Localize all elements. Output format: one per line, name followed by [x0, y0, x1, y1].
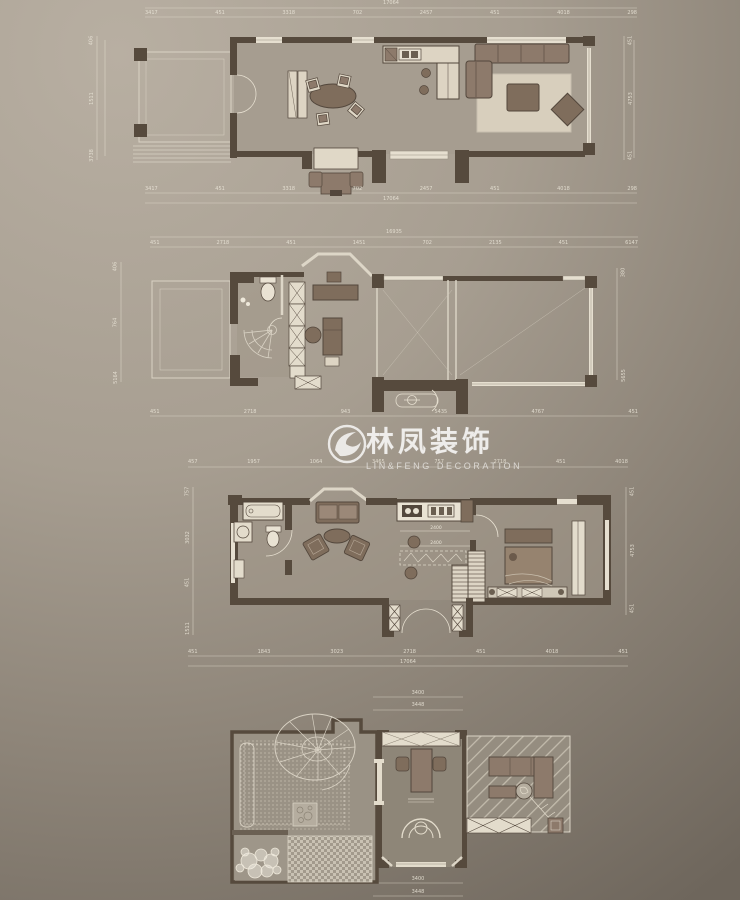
- dim-label: 298: [627, 11, 637, 16]
- desk: [411, 749, 432, 792]
- floor1-living: [466, 44, 584, 132]
- floor1-dims-top-total: 17064: [145, 1, 637, 6]
- dim-label: 451: [215, 187, 225, 192]
- phoenix-swoosh-icon: [335, 432, 361, 456]
- dim-label: 2457: [420, 11, 433, 16]
- dim-label: 451: [556, 460, 566, 465]
- side-table: [324, 529, 350, 543]
- dim-label: 1064: [310, 460, 323, 465]
- dim-label: 3318: [282, 187, 295, 192]
- dim-label: 3417: [145, 11, 158, 16]
- floor2-dims-left: 4067645164: [111, 264, 121, 380]
- armchair: [466, 61, 492, 98]
- coffee-table: [507, 84, 539, 111]
- dim-label: 457: [188, 460, 198, 465]
- dim-label: 4753: [629, 92, 634, 105]
- dim-label: 451: [630, 604, 635, 614]
- hatched-wardrobe: [468, 551, 485, 602]
- dim-label: 3023: [330, 650, 343, 655]
- dim-label: 3318: [282, 11, 295, 16]
- round-table: [516, 783, 532, 799]
- terrace-steps: [133, 146, 231, 162]
- dim-label: 3465: [372, 460, 385, 465]
- desk: [323, 318, 342, 355]
- toilet-tank: [260, 277, 276, 283]
- dim-label: 5164: [114, 371, 119, 384]
- entry-door-arc: [402, 609, 426, 633]
- roof-bench: [467, 818, 531, 833]
- stool: [405, 567, 417, 579]
- dim-label: 1843: [258, 650, 271, 655]
- watermark-logo: [329, 426, 365, 462]
- floor4-dims-bottom-1: 3400: [373, 877, 463, 882]
- floor4-dims-top-1: 3400: [373, 691, 463, 696]
- dim-label: 380: [621, 268, 626, 278]
- blueprint-canvas: 2400 2400: [0, 0, 740, 900]
- dim-label: 451: [215, 11, 225, 16]
- dim-label: 5435: [434, 410, 447, 415]
- dim-label: 2718: [494, 460, 507, 465]
- dim-label: 451: [150, 241, 160, 246]
- floor1-terrace: [133, 48, 231, 162]
- dim-label: 2718: [244, 410, 257, 415]
- floor3-dims-top: 45719571064346575727184514018: [188, 460, 628, 465]
- dim-label: 2718: [217, 241, 230, 246]
- dim-label: 1957: [247, 460, 260, 465]
- floor4-dims-top-2: 3448: [373, 703, 463, 708]
- shelf-cabinet: [313, 285, 358, 300]
- floor4-roof-area: [467, 736, 570, 833]
- dim-label: 3738: [90, 149, 95, 162]
- annotation-label: 2400: [430, 525, 442, 531]
- annotation-label: 2400: [430, 540, 442, 546]
- floor1-dims-left: 40615113738: [87, 38, 97, 158]
- floor3-dims-left: 75730324511511: [183, 489, 193, 631]
- floor3-dims-bottom: 4511843302327184514018451: [188, 650, 628, 655]
- floor2-plan: [121, 237, 638, 416]
- floor4-room: [374, 730, 467, 868]
- floor3-kitchen: [397, 500, 473, 522]
- floor1-dims-top: 3417451331870224574514018298: [145, 11, 637, 16]
- dim-label: 764: [113, 317, 118, 327]
- porch-landing: [314, 148, 358, 169]
- dim-label: 702: [353, 187, 363, 192]
- dim-label: 757: [185, 487, 190, 497]
- dim-label: 4753: [631, 544, 636, 557]
- floor2-dims-top-total: 16935: [150, 230, 638, 235]
- dresser: [505, 529, 552, 543]
- dim-label: 451: [185, 578, 190, 588]
- floor3-dims-bottom-total: 17064: [188, 660, 628, 665]
- dim-label: 451: [618, 650, 628, 655]
- dim-label: 451: [286, 241, 296, 246]
- planter: [240, 743, 254, 827]
- wardrobe: [572, 521, 585, 595]
- floor1-plan: [97, 8, 637, 203]
- dim-label: 1511: [186, 622, 191, 635]
- stool: [420, 86, 429, 95]
- floor4-plan: [232, 697, 570, 896]
- floor3-entry: [382, 598, 473, 637]
- dim-label: 451: [628, 410, 638, 415]
- dim-label: 451: [628, 36, 633, 46]
- dim-label: 451: [559, 241, 569, 246]
- dim-label: 451: [188, 650, 198, 655]
- dim-label: 5655: [622, 369, 627, 382]
- toilet: [267, 531, 279, 547]
- dim-label: 4018: [615, 460, 628, 465]
- chair: [433, 757, 446, 771]
- dim-label: 451: [628, 151, 633, 161]
- dim-label: 3032: [186, 531, 191, 544]
- floor4-terrace: [232, 714, 377, 882]
- dim-label: 2135: [489, 241, 502, 246]
- dim-label: 406: [89, 36, 94, 46]
- dim-label: 4018: [557, 187, 570, 192]
- floor1-dims-bottom-total: 17064: [145, 197, 637, 202]
- checker-paving: [288, 836, 372, 882]
- dim-label: 2457: [420, 187, 433, 192]
- toilet: [261, 283, 275, 301]
- floor1-dims-right: 4514753451: [626, 38, 636, 158]
- floor2-dims-top: 4512718451145170221354516147: [150, 241, 638, 246]
- dim-label: 1511: [90, 92, 95, 105]
- dim-label: 6147: [625, 241, 638, 246]
- floor3-dims-right: 4514753451: [628, 489, 638, 611]
- dim-label: 3417: [145, 187, 158, 192]
- top-landing: [382, 732, 460, 746]
- floor2-dims-right: 3805655: [619, 270, 629, 378]
- dim-label: 451: [150, 410, 160, 415]
- stool: [408, 536, 420, 548]
- chair: [396, 757, 409, 771]
- dim-label: 4018: [557, 11, 570, 16]
- floor2-dims-bottom: 451271894354354767451: [150, 410, 638, 415]
- dim-label: 451: [476, 650, 486, 655]
- dim-label: 451: [630, 487, 635, 497]
- ornament-square: [293, 803, 317, 826]
- dim-label: 4018: [546, 650, 559, 655]
- floor1-dims-bottom: 3417451331870224574514018298: [145, 187, 637, 192]
- stool: [422, 69, 431, 78]
- entry-step-symbol: [396, 390, 438, 411]
- void-sight-lines: [383, 288, 585, 375]
- dim-label: 451: [490, 187, 500, 192]
- sofa: [475, 44, 569, 63]
- dim-label: 702: [353, 11, 363, 16]
- dim-label: 943: [341, 410, 351, 415]
- dim-label: 298: [627, 187, 637, 192]
- dim-label: 2718: [403, 650, 416, 655]
- floor4-dims-bottom-2: 3448: [373, 890, 463, 895]
- dim-label: 406: [113, 262, 118, 272]
- dim-label: 702: [422, 241, 432, 246]
- dim-label: 757: [434, 460, 444, 465]
- desk-chair: [305, 327, 321, 343]
- dim-label: 4767: [531, 410, 544, 415]
- dim-label: 451: [490, 11, 500, 16]
- dim-label: 1451: [353, 241, 366, 246]
- bed: [505, 547, 552, 584]
- floor2-vestibule: [372, 377, 468, 414]
- floor3-plan: 2400 2400: [188, 467, 628, 666]
- floor2-open-rooms: [372, 274, 597, 387]
- floor2-study: [305, 272, 358, 366]
- floor2-terrace-outline: [152, 281, 230, 378]
